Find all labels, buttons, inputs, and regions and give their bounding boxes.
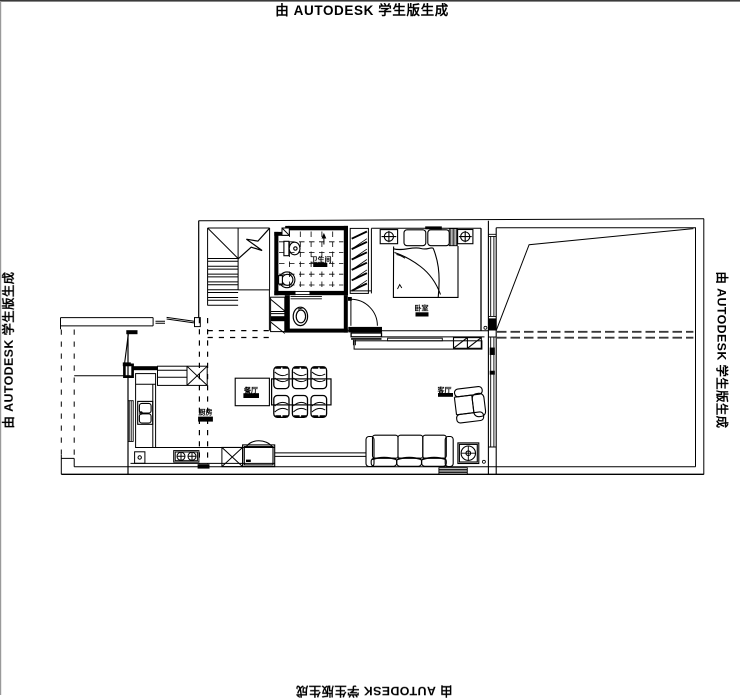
svg-text:由 AUTODESK 学生版生成: 由 AUTODESK 学生版生成 [1,271,16,428]
svg-text:卧室: 卧室 [415,304,429,313]
svg-text:卫生间: 卫生间 [311,255,332,264]
svg-text:由 AUTODESK 学生版生成: 由 AUTODESK 学生版生成 [275,2,449,18]
svg-text:由 AUTODESK 学生版生成: 由 AUTODESK 学生版生成 [715,272,730,429]
svg-text:由 AUTODESK 学生版生成: 由 AUTODESK 学生版生成 [295,684,452,699]
svg-text:餐厅: 餐厅 [243,386,258,395]
svg-text:厨房: 厨房 [199,408,213,417]
svg-text:客厅: 客厅 [437,385,452,394]
